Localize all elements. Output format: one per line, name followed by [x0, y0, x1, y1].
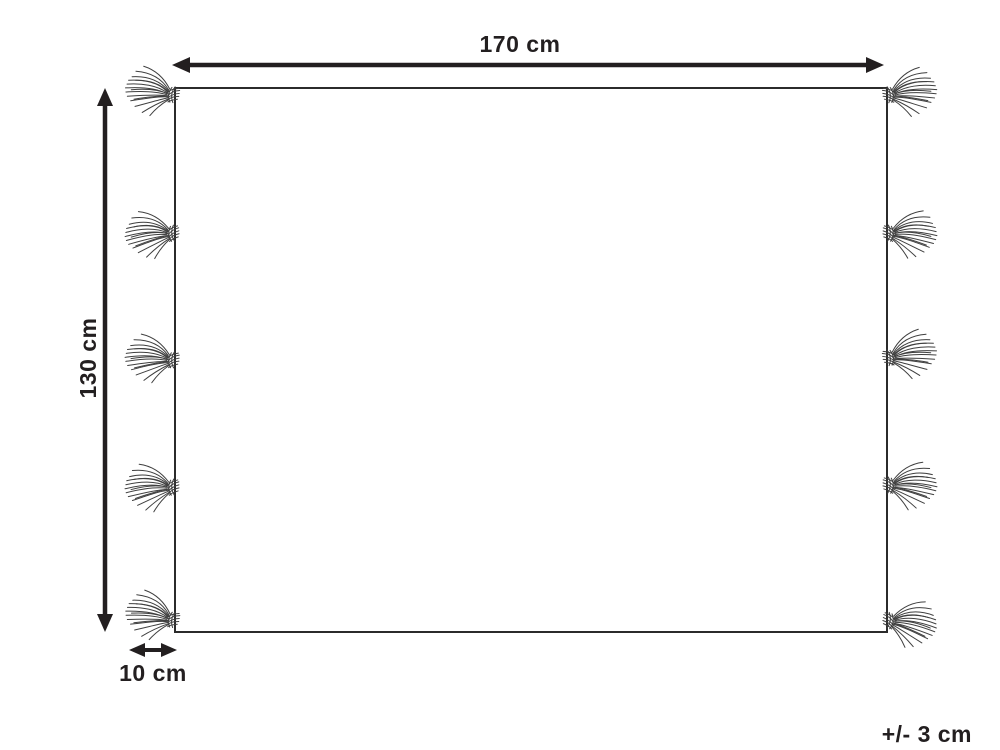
tassel — [881, 66, 940, 119]
tassel-row-left — [122, 64, 184, 644]
diagram-canvas: 170 cm 130 cm 10 cm +/- 3 cm — [0, 0, 1000, 750]
height-dimension-label: 130 cm — [75, 317, 101, 398]
width-dimension-label: 170 cm — [479, 31, 560, 57]
tassel-row-right — [879, 66, 940, 652]
tassel — [123, 209, 180, 261]
tassel — [882, 461, 938, 511]
width-dimension-arrow — [172, 57, 884, 73]
tassel — [122, 64, 182, 119]
tassel — [122, 588, 184, 645]
tassel — [879, 596, 940, 652]
tolerance-label: +/- 3 cm — [882, 721, 972, 747]
blanket-outline — [175, 88, 887, 632]
tassel — [880, 327, 940, 382]
dimension-diagram: 170 cm 130 cm 10 cm +/- 3 cm — [0, 0, 1000, 750]
tassel — [124, 333, 180, 384]
tassel — [124, 463, 180, 513]
tassel — [882, 209, 938, 260]
fringe-dimension-arrow — [129, 643, 177, 657]
fringe-dimension-label: 10 cm — [119, 660, 187, 686]
